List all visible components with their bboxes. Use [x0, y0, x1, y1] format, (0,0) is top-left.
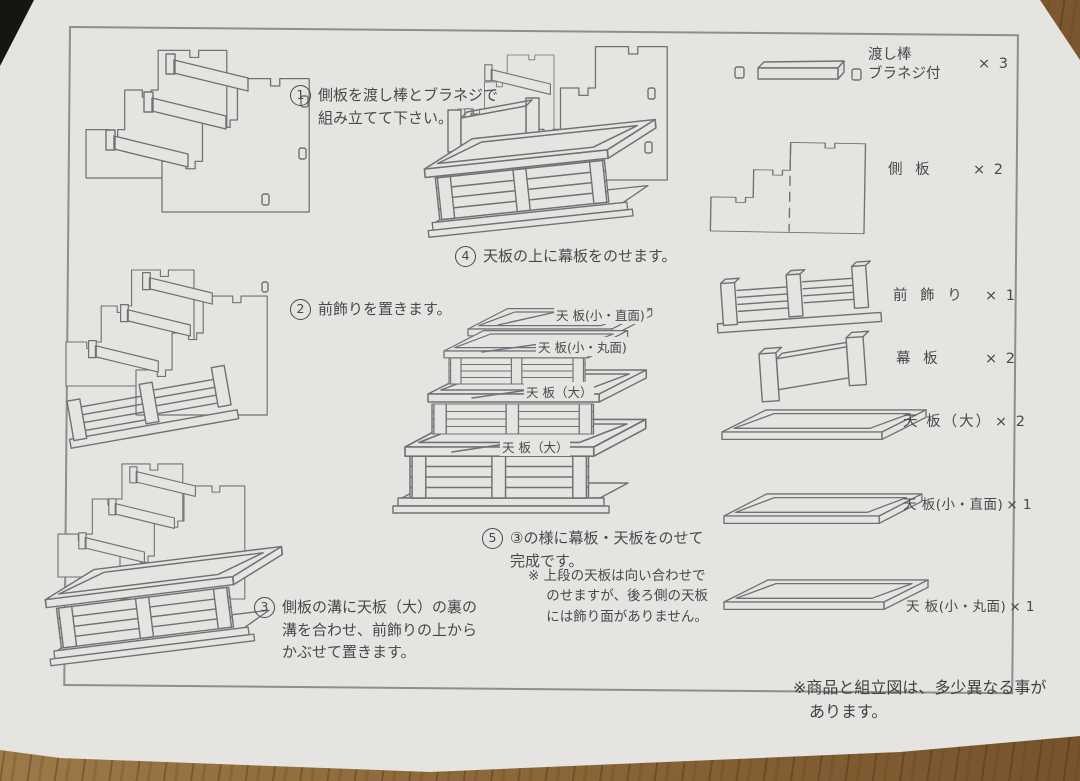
label-tenban-dai-bottom: 天 板（大）: [500, 437, 570, 456]
step1-text: 側板を渡し棒とブラネジで 組み立てて下さい。: [318, 84, 498, 129]
part-makuita-name: 幕 板: [896, 349, 942, 371]
label-tenban-sho-choku: 天 板(小・直面): [554, 305, 647, 324]
part-tenban-sho-maru-qty: × 1: [1009, 597, 1035, 617]
part-tenban-sho-maru-name: 天 板(小・丸面): [906, 597, 1006, 617]
part-tenban-sho-choku-row: 天 板(小・直面) × 1: [903, 495, 1032, 515]
part-tenban-sho-choku-qty: × 1: [1006, 495, 1032, 515]
part-watashibo-name: 渡し棒 ブラネジ付: [868, 46, 941, 84]
part-makuita-qty: × 2: [985, 349, 1017, 371]
step3-number: 3: [254, 597, 275, 618]
part-tenban-dai-name: 天 板（大）: [903, 412, 992, 434]
step5-number: 5: [482, 528, 503, 549]
step4-number: 4: [455, 246, 476, 267]
part-sokuban-name: 側 板: [888, 160, 934, 182]
step5-note: ※ 上段の天板は向い合わせで のせますが、後ろ側の天板 には飾り面がありません。: [528, 566, 766, 627]
label-tenban-sho-maru: 天 板(小・丸面): [536, 337, 629, 356]
part-watashibo-qty: × 3: [978, 54, 1010, 76]
step2-text: 前飾りを置きます。: [318, 298, 452, 321]
part-tenban-sho-choku-name: 天 板(小・直面): [903, 495, 1003, 515]
step1-number: 1: [290, 85, 311, 106]
part-maekazari-name: 前 飾 り: [893, 286, 966, 308]
footer-disclaimer: ※商品と組立図は、多少異なる事が あります。: [793, 676, 1080, 724]
part-tenban-sho-maru-row: 天 板(小・丸面) × 1: [906, 597, 1035, 617]
part-sokuban-qty: × 2: [973, 160, 1005, 182]
part-tenban-dai-qty: × 2: [995, 412, 1027, 434]
part-maekazari-qty: × 1: [985, 286, 1017, 308]
step2-instruction: 2 前飾りを置きます。: [290, 298, 452, 321]
step1-instruction: 1 側板を渡し棒とブラネジで 組み立てて下さい。: [290, 84, 498, 129]
photo-of-instruction-sheet: 1 側板を渡し棒とブラネジで 組み立てて下さい。 2 前飾りを置きます。 3 側…: [0, 0, 1080, 781]
label-tenban-dai-mid: 天 板（大）: [524, 382, 594, 401]
step4-text: 天板の上に幕板をのせます。: [483, 245, 677, 268]
step3-instruction: 3 側板の溝に天板（大）の裏の 溝を合わせ、前飾りの上から かぶせて置きます。: [254, 596, 477, 664]
step3-text: 側板の溝に天板（大）の裏の 溝を合わせ、前飾りの上から かぶせて置きます。: [282, 596, 477, 664]
step4-instruction: 4 天板の上に幕板をのせます。: [455, 245, 677, 268]
step2-number: 2: [290, 299, 311, 320]
